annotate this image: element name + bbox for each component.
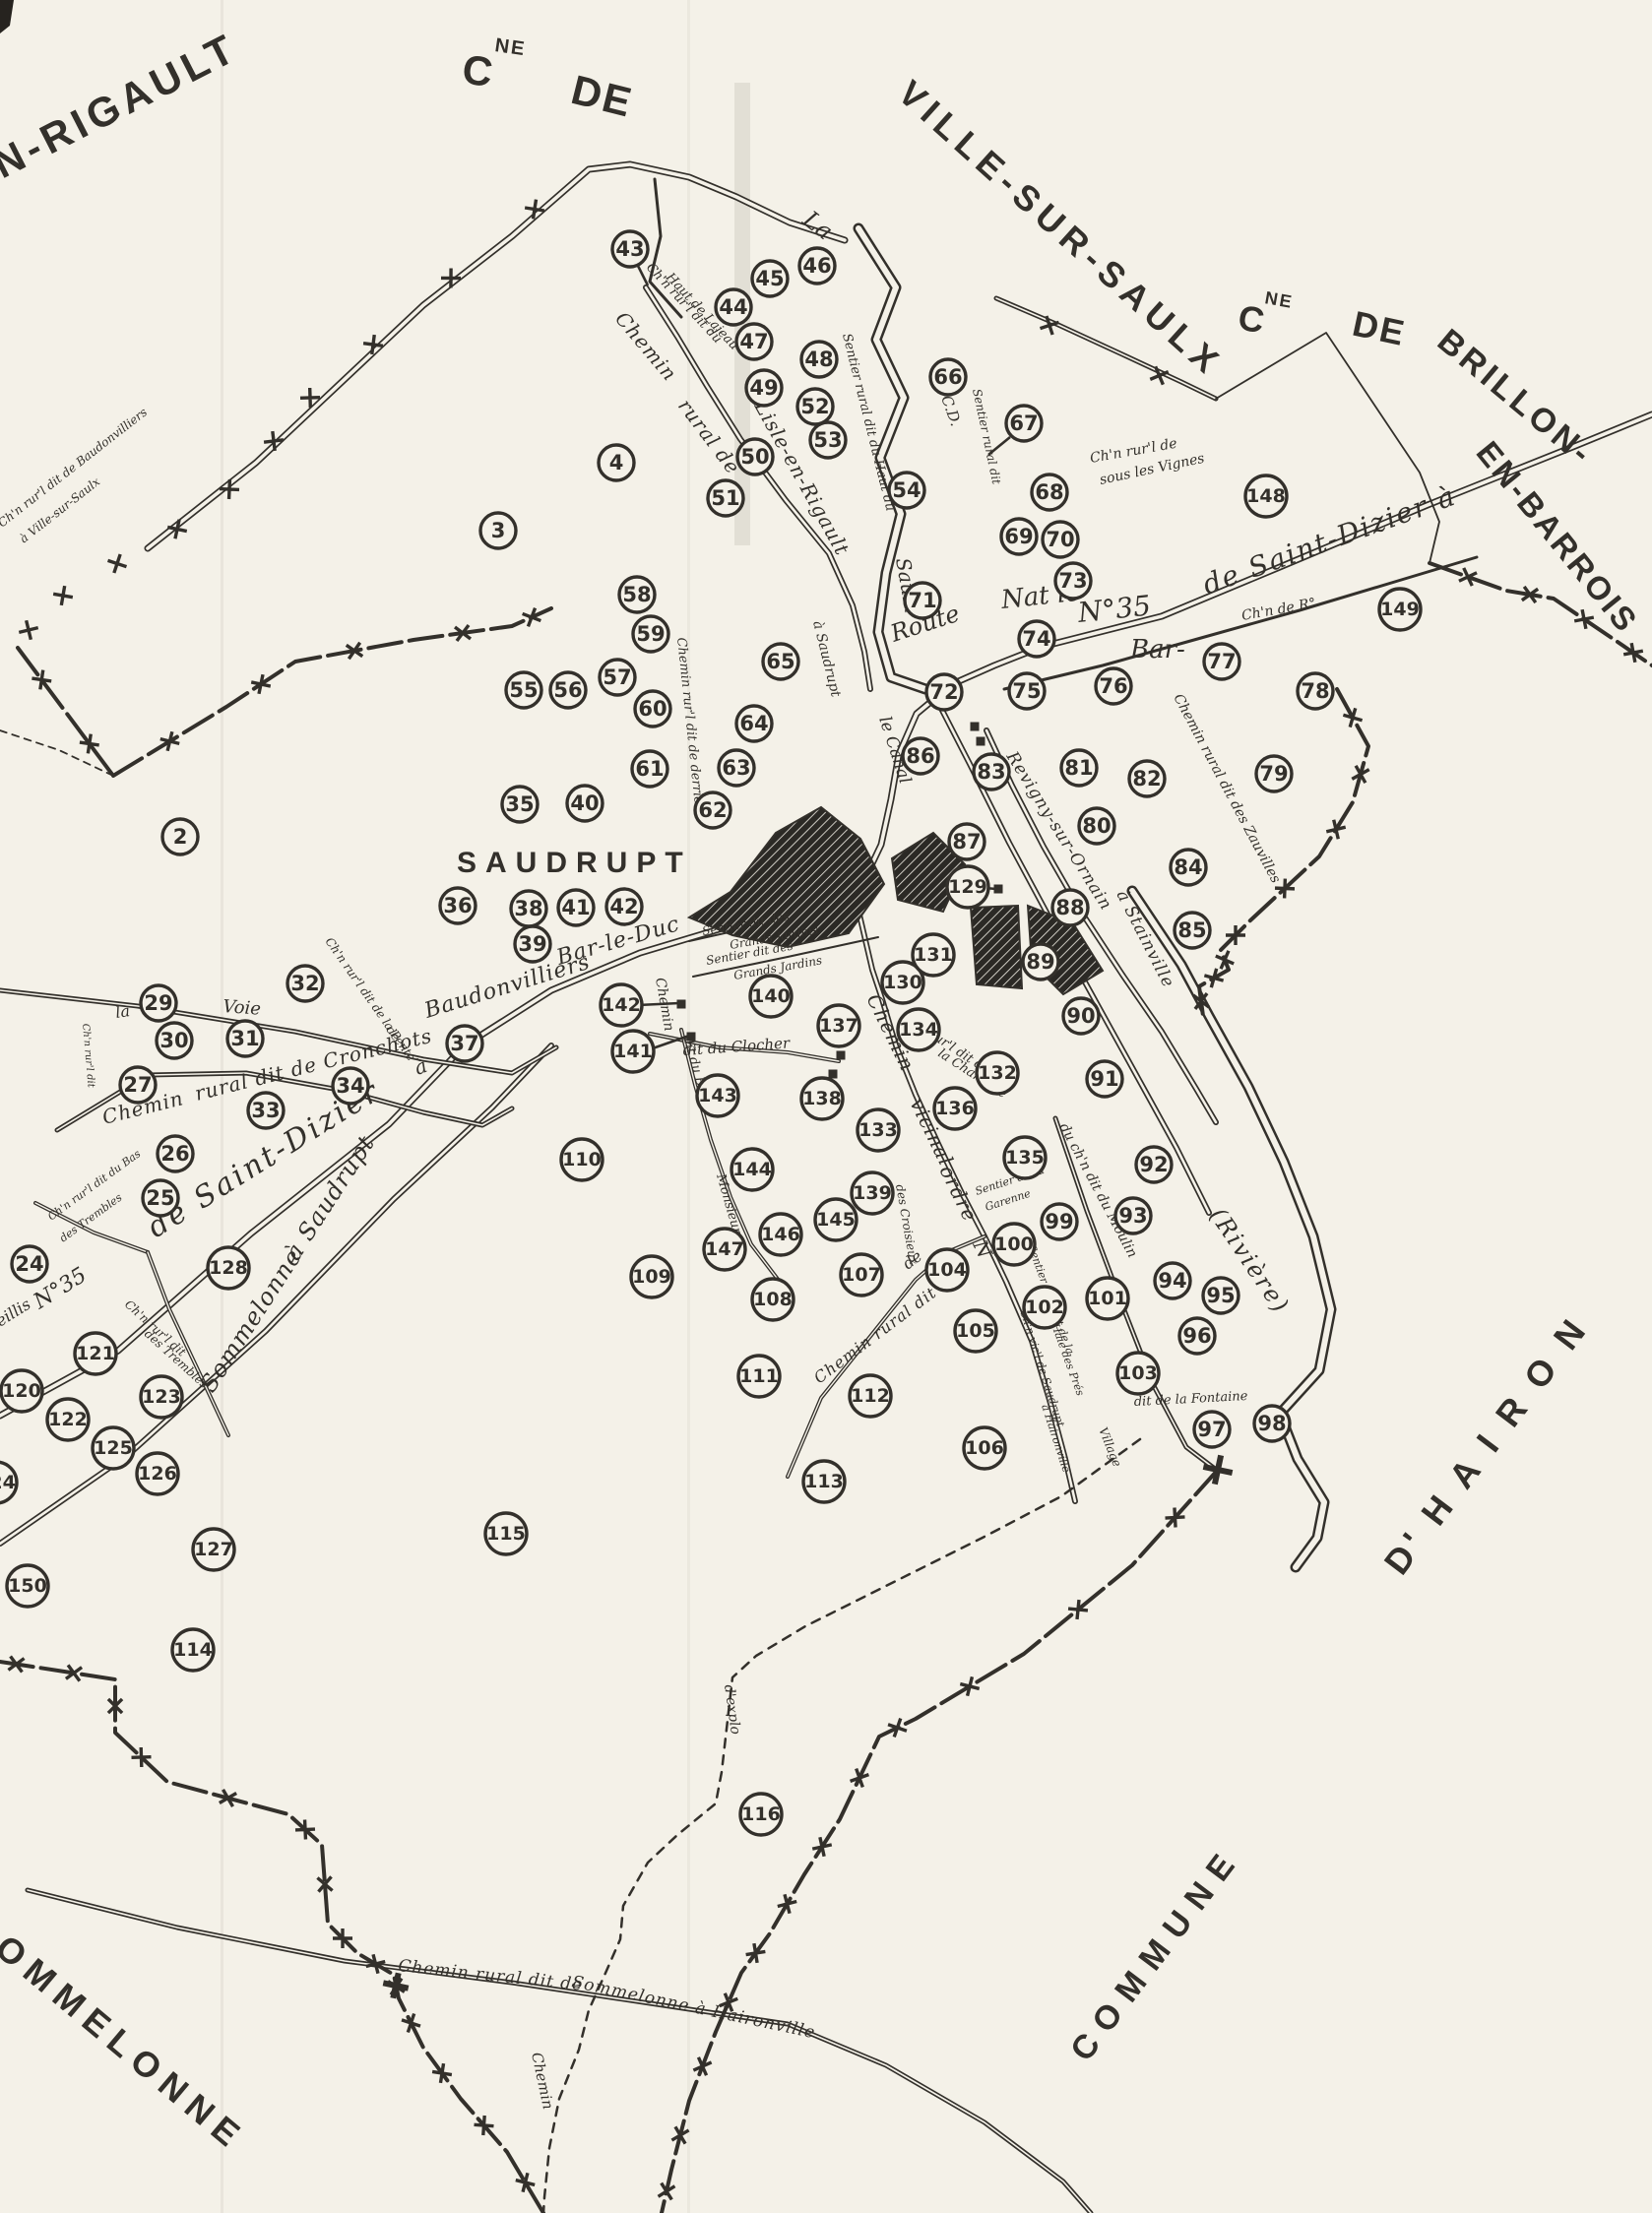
parcel-marker-126[interactable]: 126 <box>137 1453 178 1494</box>
parcel-marker-86[interactable]: 86 <box>903 738 938 774</box>
parcel-number: 73 <box>1058 569 1087 593</box>
road-name-label: Chemin rur'l dit de derrière <box>673 637 707 819</box>
parcel-marker-74[interactable]: 74 <box>1019 621 1054 657</box>
road-path <box>28 1890 1091 2213</box>
parcel-marker-35[interactable]: 35 <box>502 787 538 822</box>
road-name-label: de <box>899 1246 925 1273</box>
parcel-number: 140 <box>751 985 791 1007</box>
parcel-marker-136[interactable]: 136 <box>934 1088 976 1129</box>
boundary-tick <box>519 604 544 630</box>
parcel-number: 32 <box>290 972 319 995</box>
parcel-number: 72 <box>929 680 958 704</box>
parcel-number: 95 <box>1206 1284 1235 1307</box>
boundary-tick <box>847 1765 872 1791</box>
parcel-marker-87[interactable]: 87 <box>949 824 985 859</box>
road-path <box>0 884 862 1416</box>
region-name-label: C <box>1236 297 1268 342</box>
parcel-number: 121 <box>76 1343 115 1364</box>
parcel-marker-61[interactable]: 61 <box>632 751 667 787</box>
parcel-marker-46[interactable]: 46 <box>799 248 835 284</box>
parcel-number: 146 <box>761 1224 800 1245</box>
boundary-tick <box>1572 607 1595 630</box>
parcel-number: 99 <box>1045 1210 1073 1233</box>
parcel-marker-90[interactable]: 90 <box>1063 998 1099 1034</box>
parcel-number: 143 <box>698 1085 737 1106</box>
parcel-marker-107[interactable]: 107 <box>841 1254 882 1296</box>
parcel-marker-96[interactable]: 96 <box>1179 1318 1215 1354</box>
parcel-number: 35 <box>505 792 534 816</box>
scan-corner-mark <box>0 0 14 33</box>
parcel-number: 47 <box>739 330 768 353</box>
parcel-marker-115[interactable]: 115 <box>485 1513 527 1554</box>
parcel-marker-95[interactable]: 95 <box>1203 1278 1239 1313</box>
parcel-number: 136 <box>935 1098 975 1119</box>
parcel-marker-45[interactable]: 45 <box>752 261 788 296</box>
parcel-number: 88 <box>1055 896 1084 919</box>
boundary-tick <box>249 672 273 696</box>
parcel-marker-104[interactable]: 104 <box>926 1249 968 1291</box>
boundary-tick <box>653 2178 680 2205</box>
parcel-number: 71 <box>908 589 936 612</box>
parcel-marker-112[interactable]: 112 <box>850 1375 891 1417</box>
parcel-marker-72[interactable]: 72 <box>926 674 962 710</box>
parcel-marker-142[interactable]: 142 <box>601 984 642 1026</box>
boundary-tick <box>1621 641 1644 664</box>
parcel-number: 50 <box>740 445 769 469</box>
parcel-marker-147[interactable]: 147 <box>704 1229 745 1270</box>
parcel-marker-123[interactable]: 123 <box>141 1376 182 1418</box>
village-block <box>971 906 1022 988</box>
building-square <box>977 737 985 746</box>
parcel-marker-50[interactable]: 50 <box>737 439 773 474</box>
parcel-number: 62 <box>698 798 727 822</box>
parcel-marker-65[interactable]: 65 <box>763 644 798 679</box>
parcel-number: 139 <box>853 1182 892 1204</box>
parcel-number: 135 <box>1005 1147 1045 1169</box>
building-square <box>971 723 980 731</box>
commune-boundary <box>662 1470 1218 2213</box>
boundary-tick <box>810 1835 834 1859</box>
parcel-marker-93[interactable]: 93 <box>1115 1198 1151 1233</box>
parcel-number: 49 <box>749 376 778 400</box>
parcel-number: 127 <box>194 1539 233 1560</box>
region-name-label: C <box>460 45 496 95</box>
parcel-number: 105 <box>956 1320 995 1342</box>
parcel-number: 106 <box>965 1437 1004 1459</box>
boundary-tick <box>1202 966 1227 990</box>
parcel-number: 65 <box>766 650 794 673</box>
parcel-number: 150 <box>8 1575 47 1597</box>
parcel-number: 2 <box>173 825 188 849</box>
parcel-number: 29 <box>144 991 172 1015</box>
parcel-marker-60[interactable]: 60 <box>635 691 670 727</box>
region-name-label: COMMELONNE <box>0 1905 254 2160</box>
parcel-number: 104 <box>927 1259 967 1281</box>
parcel-number: 93 <box>1118 1204 1147 1228</box>
parcel-marker-99[interactable]: 99 <box>1042 1204 1077 1239</box>
parcel-marker-43[interactable]: 43 <box>612 231 648 267</box>
parcel-number: 148 <box>1246 485 1286 507</box>
parcel-number: 30 <box>159 1029 188 1052</box>
parcel-marker-62[interactable]: 62 <box>695 792 731 828</box>
parcel-number: 147 <box>705 1238 744 1260</box>
parcel-marker-58[interactable]: 58 <box>619 577 655 612</box>
road-name-label: Voie <box>222 996 262 1020</box>
parcel-number: 43 <box>615 237 644 261</box>
parcel-number: 41 <box>561 896 590 919</box>
parcel-number: 101 <box>1088 1288 1127 1309</box>
dashed-track <box>543 1439 1140 2213</box>
parcel-number: 80 <box>1082 814 1111 838</box>
road-name-label: Village <box>1096 1425 1124 1469</box>
parcel-marker-145[interactable]: 145 <box>815 1199 857 1240</box>
parcel-marker-109[interactable]: 109 <box>631 1256 672 1297</box>
parcel-marker-80[interactable]: 80 <box>1079 808 1114 844</box>
region-name-label: BRILLON- <box>1430 322 1601 474</box>
parcel-marker-92[interactable]: 92 <box>1136 1147 1172 1182</box>
parcel-number: 70 <box>1046 528 1074 551</box>
parcel-number: 130 <box>883 972 922 993</box>
parcel-marker-129[interactable]: 129 <box>947 866 988 908</box>
parcel-number: 125 <box>94 1437 133 1459</box>
parcel-number: 27 <box>123 1073 152 1097</box>
region-name-label: EN-BARROIS <box>1470 434 1646 640</box>
parcel-number: 107 <box>842 1264 881 1286</box>
parcel-marker-38[interactable]: 38 <box>511 891 546 926</box>
parcel-marker-64[interactable]: 64 <box>736 706 772 741</box>
parcel-number: 96 <box>1182 1324 1211 1348</box>
parcel-marker-85[interactable]: 85 <box>1175 913 1210 948</box>
parcel-marker-84[interactable]: 84 <box>1171 850 1206 885</box>
parcel-number: 31 <box>230 1027 259 1050</box>
boundary-tick <box>689 2054 715 2079</box>
parcel-number: 112 <box>851 1385 890 1407</box>
boundary-tick <box>513 2171 537 2194</box>
parcel-number: 120 <box>2 1380 41 1402</box>
road-name-label: Sommelonne à Haironville <box>570 1972 817 2043</box>
parcel-marker-125[interactable]: 125 <box>93 1427 134 1469</box>
road-name-label: Bar- <box>1129 635 1185 664</box>
parcel-number: 64 <box>739 712 768 735</box>
parcel-marker-76[interactable]: 76 <box>1096 668 1131 704</box>
parcel-number: 126 <box>138 1463 177 1485</box>
parcel-marker-42[interactable]: 42 <box>606 889 642 924</box>
boundary-tick <box>775 1892 798 1916</box>
parcel-marker-116[interactable]: 116 <box>740 1794 782 1835</box>
parcel-marker-29[interactable]: 29 <box>141 985 176 1021</box>
parcel-marker-37[interactable]: 37 <box>447 1026 482 1061</box>
parcel-marker-63[interactable]: 63 <box>719 750 754 786</box>
parcel-number: 149 <box>1380 599 1420 620</box>
parcel-number: 69 <box>1004 525 1033 548</box>
parcel-number: 87 <box>952 830 981 854</box>
region-name-label: DE <box>567 66 638 126</box>
parcel-number: 4 <box>609 451 624 474</box>
village-name-label: SAUDRUPT <box>457 847 692 879</box>
parcel-marker-103[interactable]: 103 <box>1117 1353 1159 1394</box>
parcel-marker-56[interactable]: 56 <box>550 672 586 708</box>
boundary-tick <box>885 1715 910 1739</box>
parcel-marker-138[interactable]: 138 <box>801 1078 843 1119</box>
parcel-number: 91 <box>1090 1067 1118 1091</box>
parcel-number: 37 <box>450 1032 478 1055</box>
parcel-marker-148[interactable]: 148 <box>1245 475 1287 517</box>
road-name-label: à Saudrupt <box>809 619 844 699</box>
region-name-label: N-RIGAULT <box>0 24 245 187</box>
parcel-marker-40[interactable]: 40 <box>567 786 603 821</box>
parcel-number: 77 <box>1207 650 1236 673</box>
parcel-marker-30[interactable]: 30 <box>157 1023 192 1058</box>
parcel-number: 103 <box>1118 1362 1158 1384</box>
parcel-number: 45 <box>755 267 784 290</box>
boundary-tick <box>104 551 129 576</box>
parcel-marker-121[interactable]: 121 <box>75 1333 116 1374</box>
parcel-marker-39[interactable]: 39 <box>515 926 550 962</box>
parcel-marker-52[interactable]: 52 <box>797 389 833 424</box>
parcel-number: 131 <box>914 944 953 966</box>
road-name-label: rural de <box>673 395 745 479</box>
parcel-number: 48 <box>804 348 833 371</box>
parcel-marker-81[interactable]: 81 <box>1061 750 1097 786</box>
building-square <box>829 1070 838 1079</box>
parcel-number: 26 <box>160 1142 189 1166</box>
parcel-number: 114 <box>173 1639 213 1661</box>
parcel-number: 116 <box>741 1803 781 1825</box>
parcel-number: 124 <box>0 1472 16 1493</box>
road-name-label: dit de la Fontaine <box>1133 1389 1248 1410</box>
parcel-markers-layer: 2342425262729303132333435363738394041424… <box>0 231 1421 1835</box>
parcel-marker-26[interactable]: 26 <box>158 1136 193 1171</box>
parcel-number: 123 <box>142 1386 181 1408</box>
parcel-marker-131[interactable]: 131 <box>913 934 954 976</box>
parcel-marker-144[interactable]: 144 <box>731 1149 773 1190</box>
parcel-marker-89[interactable]: 89 <box>1023 944 1058 980</box>
parcel-marker-77[interactable]: 77 <box>1204 644 1239 679</box>
parcel-marker-120[interactable]: 120 <box>1 1370 42 1412</box>
parcel-marker-83[interactable]: 83 <box>974 754 1009 790</box>
boundary-tick <box>524 198 546 221</box>
parcel-marker-2[interactable]: 2 <box>162 819 198 854</box>
parcel-marker-27[interactable]: 27 <box>120 1067 156 1103</box>
parcel-marker-73[interactable]: 73 <box>1055 563 1091 599</box>
parcel-number: 102 <box>1025 1296 1064 1318</box>
parcel-number: 132 <box>978 1062 1017 1084</box>
parcel-marker-68[interactable]: 68 <box>1032 474 1067 510</box>
parcel-marker-91[interactable]: 91 <box>1087 1061 1122 1097</box>
parcel-marker-53[interactable]: 53 <box>810 422 846 458</box>
commune-boundary <box>0 1662 543 2213</box>
parcel-marker-122[interactable]: 122 <box>47 1399 89 1440</box>
road-name-label: d'explo <box>721 1683 743 1736</box>
parcel-number: 115 <box>486 1523 526 1545</box>
road-name-label: Chemin <box>610 307 682 386</box>
parcel-number: 81 <box>1064 756 1093 780</box>
boundary-tick <box>958 1675 982 1698</box>
parcel-marker-140[interactable]: 140 <box>750 976 792 1017</box>
parcel-marker-33[interactable]: 33 <box>248 1093 284 1128</box>
parcel-marker-134[interactable]: 134 <box>898 1009 939 1050</box>
road-name-label: la <box>114 1001 131 1022</box>
parcel-number: 66 <box>933 365 962 389</box>
parcel-marker-94[interactable]: 94 <box>1155 1263 1190 1298</box>
building-square <box>837 1051 846 1060</box>
parcel-number: 97 <box>1197 1418 1226 1441</box>
commune-boundary <box>1199 689 1368 1016</box>
parcel-number: 55 <box>509 678 538 702</box>
parcel-marker-127[interactable]: 127 <box>193 1529 234 1570</box>
road-name-label: eillis <box>0 1295 33 1330</box>
parcel-marker-150[interactable]: 150 <box>7 1565 48 1607</box>
parcel-number: 111 <box>739 1365 779 1387</box>
parcel-number: 142 <box>602 994 641 1016</box>
parcel-number: 86 <box>906 744 934 768</box>
region-name-label: DE <box>1349 303 1409 353</box>
parcel-marker-132[interactable]: 132 <box>977 1052 1018 1094</box>
parcel-marker-106[interactable]: 106 <box>964 1427 1005 1469</box>
parcel-marker-75[interactable]: 75 <box>1009 673 1045 709</box>
region-name-label: D' H A I R O N <box>1376 1307 1597 1582</box>
parcel-number: 141 <box>613 1041 653 1062</box>
parcel-marker-44[interactable]: 44 <box>716 289 751 325</box>
parcel-marker-69[interactable]: 69 <box>1001 519 1037 554</box>
parcel-number: 133 <box>858 1119 898 1141</box>
parcel-marker-137[interactable]: 137 <box>818 1005 859 1046</box>
parcel-number: 53 <box>813 428 842 452</box>
parcel-number: 33 <box>251 1099 280 1122</box>
boundary-tick <box>158 729 181 753</box>
parcel-marker-79[interactable]: 79 <box>1256 756 1292 791</box>
parcel-number: 82 <box>1132 767 1161 790</box>
parcel-number: 98 <box>1257 1412 1286 1435</box>
parcel-marker-97[interactable]: 97 <box>1194 1412 1230 1447</box>
parcel-marker-98[interactable]: 98 <box>1254 1406 1290 1441</box>
boundary-tick <box>215 1785 241 1811</box>
boundary-tick <box>399 2010 423 2035</box>
parcel-marker-133[interactable]: 133 <box>858 1109 899 1151</box>
parcel-number: 74 <box>1022 627 1050 651</box>
parcel-number: 46 <box>802 254 831 278</box>
parcel-number: 76 <box>1099 674 1127 698</box>
parcel-marker-24[interactable]: 24 <box>12 1246 47 1282</box>
parcel-marker-36[interactable]: 36 <box>440 888 476 923</box>
parcel-marker-59[interactable]: 59 <box>633 616 668 652</box>
parcel-number: 100 <box>994 1233 1034 1255</box>
parcel-number: 52 <box>800 395 829 418</box>
boundary-tick <box>17 618 40 642</box>
parcel-marker-143[interactable]: 143 <box>697 1075 738 1116</box>
parcel-marker-31[interactable]: 31 <box>227 1021 263 1056</box>
parcel-number: 128 <box>209 1257 248 1279</box>
boundary-tick <box>1347 761 1373 788</box>
boundary-tick <box>1324 817 1348 841</box>
parcel-number: 61 <box>635 757 664 781</box>
parcel-number: 40 <box>570 791 599 815</box>
parcel-marker-66[interactable]: 66 <box>930 359 966 395</box>
parcel-marker-54[interactable]: 54 <box>889 473 924 508</box>
parcel-marker-100[interactable]: 100 <box>993 1224 1035 1265</box>
parcel-number: 108 <box>753 1289 793 1310</box>
parcel-marker-113[interactable]: 113 <box>803 1461 845 1502</box>
parcel-number: 144 <box>732 1159 772 1180</box>
parcel-marker-108[interactable]: 108 <box>752 1279 794 1320</box>
region-name-label: COMMUNE <box>1063 1839 1249 2068</box>
parcel-marker-124[interactable]: 124 <box>0 1462 17 1503</box>
parcel-marker-111[interactable]: 111 <box>738 1356 780 1397</box>
parcel-marker-88[interactable]: 88 <box>1052 890 1088 925</box>
parcel-number: 110 <box>562 1149 602 1170</box>
parcel-number: 68 <box>1035 480 1063 504</box>
parcel-marker-55[interactable]: 55 <box>506 672 541 708</box>
parcel-marker-67[interactable]: 67 <box>1006 406 1042 441</box>
parcel-marker-51[interactable]: 51 <box>708 480 743 516</box>
parcel-marker-105[interactable]: 105 <box>955 1310 996 1352</box>
parcel-number: 129 <box>948 876 987 898</box>
parcel-marker-82[interactable]: 82 <box>1129 761 1165 796</box>
road-name-label: de Saint-Dizier à <box>1198 479 1461 601</box>
cadastral-map-canvas: N-RIGAULTCNEDEVILLE-SUR-SAULXCNEDEBRILLO… <box>0 0 1652 2213</box>
parcel-number: 94 <box>1158 1269 1186 1293</box>
parcel-number: 34 <box>336 1074 364 1098</box>
parcel-marker-102[interactable]: 102 <box>1024 1287 1065 1328</box>
parcel-number: 36 <box>443 894 472 917</box>
parcel-number: 51 <box>711 486 739 510</box>
parcel-marker-49[interactable]: 49 <box>746 370 782 406</box>
parcel-marker-41[interactable]: 41 <box>558 890 594 925</box>
parcel-marker-70[interactable]: 70 <box>1043 522 1078 557</box>
parcel-marker-57[interactable]: 57 <box>600 660 635 695</box>
parcel-marker-101[interactable]: 101 <box>1087 1278 1128 1319</box>
parcel-number: 56 <box>553 678 582 702</box>
road-path <box>28 1890 1091 2213</box>
parcel-marker-25[interactable]: 25 <box>143 1180 178 1216</box>
parcel-number: 25 <box>146 1186 174 1210</box>
parcel-marker-141[interactable]: 141 <box>612 1031 654 1072</box>
parcel-number: 38 <box>514 897 542 920</box>
parcel-marker-110[interactable]: 110 <box>561 1139 603 1180</box>
commune-boundary <box>113 608 551 776</box>
parcel-marker-34[interactable]: 34 <box>333 1068 368 1104</box>
parcel-marker-78[interactable]: 78 <box>1298 673 1333 709</box>
boundary-tick <box>362 334 384 355</box>
parcel-number: 59 <box>636 622 665 646</box>
parcel-number: 78 <box>1301 679 1329 703</box>
parcel-marker-149[interactable]: 149 <box>1379 589 1421 630</box>
parcel-marker-114[interactable]: 114 <box>172 1629 214 1671</box>
parcel-marker-32[interactable]: 32 <box>287 966 323 1001</box>
region-name-label: NE <box>493 34 528 60</box>
parcel-number: 145 <box>816 1209 856 1231</box>
boundary-tick <box>1341 706 1366 730</box>
parcel-number: 83 <box>977 760 1005 784</box>
parcel-marker-135[interactable]: 135 <box>1004 1137 1046 1178</box>
parcel-number: 90 <box>1066 1004 1095 1028</box>
parcel-marker-47[interactable]: 47 <box>736 324 772 359</box>
parcel-number: 75 <box>1012 679 1041 703</box>
parcel-marker-128[interactable]: 128 <box>208 1247 249 1289</box>
parcel-number: 44 <box>719 295 747 319</box>
parcel-marker-3[interactable]: 3 <box>480 513 516 548</box>
parcel-number: 54 <box>892 478 921 502</box>
parcel-marker-71[interactable]: 71 <box>905 583 940 618</box>
parcel-number: 39 <box>518 932 546 956</box>
boundary-tick <box>1455 564 1482 591</box>
parcel-number: 122 <box>48 1409 88 1430</box>
road-name-label: Ch'n de R° <box>1240 596 1317 624</box>
parcel-marker-146[interactable]: 146 <box>760 1214 801 1255</box>
parcel-marker-4[interactable]: 4 <box>599 445 634 480</box>
parcel-marker-48[interactable]: 48 <box>801 342 837 377</box>
parcel-marker-139[interactable]: 139 <box>852 1172 893 1214</box>
